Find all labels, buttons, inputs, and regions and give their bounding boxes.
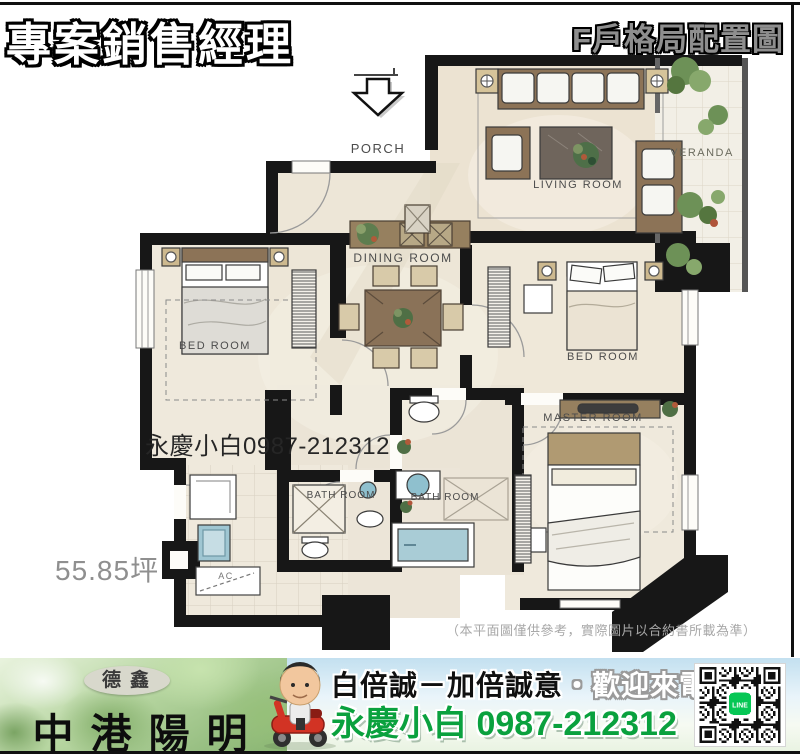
room-label-veranda: VERANDA — [662, 147, 742, 159]
entrance-arrow — [354, 68, 405, 118]
room-label-porch: PORCH — [332, 141, 424, 156]
room-label-bedroom-left: BED ROOM — [156, 340, 274, 352]
unit-layout-title: F戶格局配置圖 — [572, 14, 784, 59]
banner-agent-section: 白倍誠－加倍誠意・歡迎來電 永慶小白 0987-212312 LINE — [287, 658, 800, 751]
top-border-rule — [0, 2, 800, 5]
flyer-page: 專案銷售經理 F戶格局配置圖 — [0, 0, 800, 754]
floorplan-drawing — [78, 55, 794, 657]
qr-pattern: LINE — [698, 667, 782, 743]
banner-project-section: 德鑫 中港陽明 — [0, 658, 287, 751]
watermark-text: 永慶小白0987-212312 — [145, 426, 390, 461]
room-label-bath-right: BATH ROOM — [386, 492, 504, 503]
agent-scooter-illustration — [252, 658, 348, 751]
floorplan: PORCH LIVING ROOM VERANDA DINING ROOM BE… — [78, 55, 794, 657]
line-qr-code: LINE — [694, 663, 786, 747]
project-name: 中港陽明 — [0, 700, 287, 751]
room-label-bath-left: BATH ROOM — [282, 490, 400, 501]
area-label: 55.85坪 — [55, 549, 159, 589]
disclaimer-text: （本平面圖僅供參考，實際圖片以合約書所載為準） — [446, 620, 757, 639]
room-label-living: LIVING ROOM — [518, 179, 638, 191]
room-label-master: MASTER ROOM — [533, 412, 653, 424]
agent-phone-line: 永慶小白 0987-212312 — [331, 696, 677, 745]
room-label-bedroom-right: BED ROOM — [543, 351, 663, 363]
builder-badge: 德鑫 — [84, 666, 170, 695]
room-label-ac: AC — [206, 571, 246, 581]
bottom-banner: 德鑫 中港陽明 白倍誠－加倍誠意・歡迎來電 永慶小 — [0, 658, 800, 751]
room-label-dining: DINING ROOM — [343, 251, 463, 265]
line-logo-label: LINE — [732, 703, 748, 710]
